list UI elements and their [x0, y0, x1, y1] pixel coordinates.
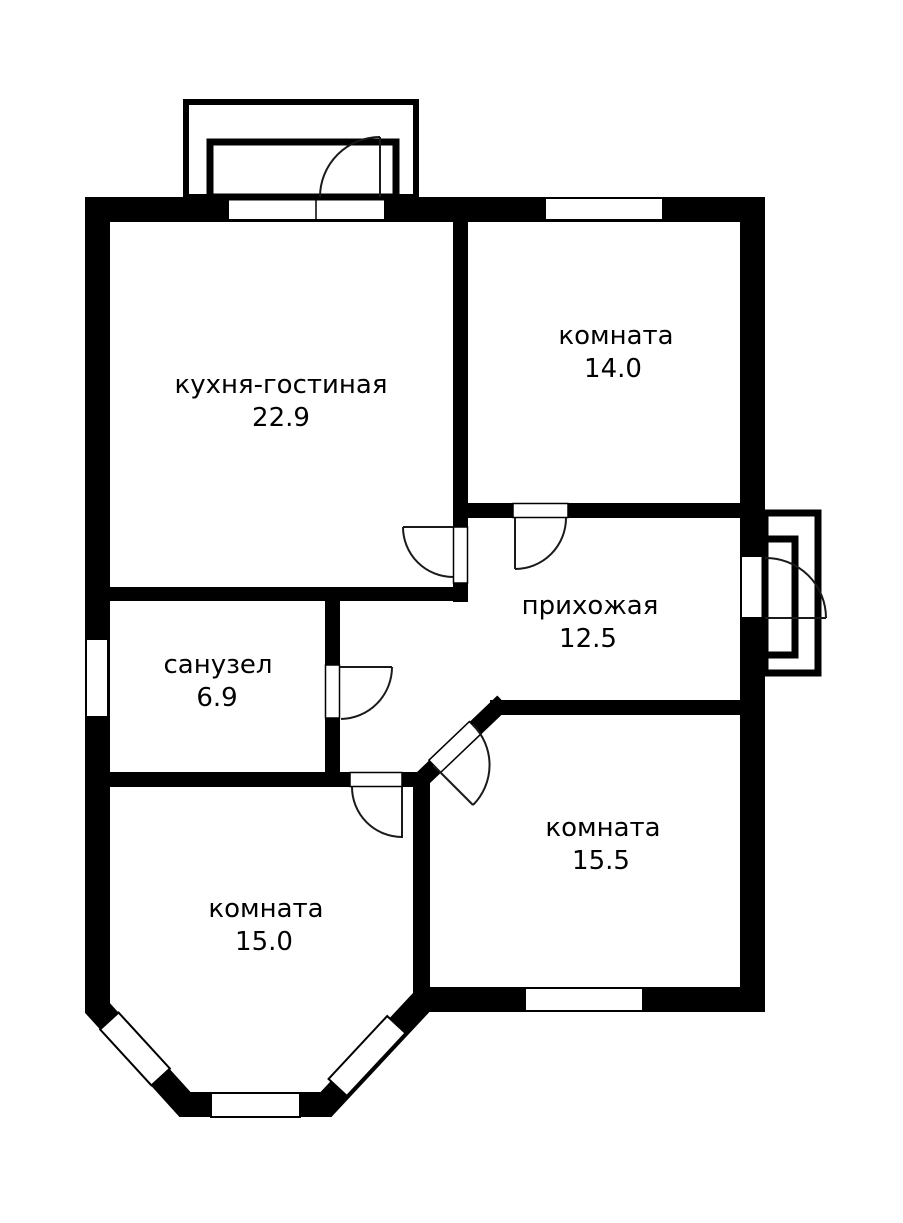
- door-opening-kitchen: [454, 527, 468, 583]
- wall-kitchen-room14: [453, 222, 468, 527]
- wall-hall-room155: [490, 700, 753, 715]
- label-room155-name: комната: [545, 813, 660, 843]
- door-opening-diagonal: [429, 722, 481, 773]
- porch-top-outer: [186, 102, 416, 197]
- wall-room150-room155: [413, 772, 430, 1012]
- door-arc-entry-top: [320, 137, 380, 197]
- wall-room14-bottom-left: [468, 503, 513, 518]
- door-arc-kitchen: [403, 527, 453, 577]
- window-bay-left: [100, 1013, 170, 1086]
- label-room14-area: 14.0: [584, 354, 642, 384]
- entry-porch-top: [186, 102, 416, 197]
- window-bath-left: [86, 639, 108, 717]
- window-bay-bottom: [211, 1093, 300, 1117]
- entry-porch-right: [765, 513, 818, 673]
- wall-kitchen-bath: [97, 587, 453, 601]
- door-opening-room150: [350, 773, 402, 787]
- wall-bath-east-lower: [325, 718, 340, 774]
- label-room150-name: комната: [208, 894, 323, 924]
- door-leaf-room155: [433, 765, 473, 805]
- label-kitchen-living-area: 22.9: [252, 403, 310, 433]
- door-opening-bath: [326, 665, 340, 718]
- wall-bath-bottom: [97, 772, 350, 787]
- door-arc-bath: [341, 667, 392, 719]
- window-room155-bottom: [525, 988, 643, 1011]
- label-hallway-name: прихожая: [522, 591, 659, 621]
- window-bay-right: [329, 1016, 406, 1096]
- floor-plan: кухня-гостиная 22.9 комната 14.0 прихожа…: [0, 0, 903, 1223]
- door-arc-room14: [515, 518, 566, 569]
- label-room150-area: 15.0: [235, 927, 293, 957]
- label-room155-area: 15.5: [572, 846, 630, 876]
- label-kitchen-living-name: кухня-гостиная: [175, 370, 388, 400]
- window-side-door: [741, 556, 763, 618]
- label-bathroom-name: санузел: [163, 650, 272, 680]
- window-entry-top: [228, 198, 385, 220]
- wall-room14-bottom-right: [568, 503, 753, 518]
- window-room14-top: [545, 198, 663, 220]
- wall-kitchen-hall-lower: [453, 583, 468, 602]
- label-hallway-area: 12.5: [559, 624, 617, 654]
- porch-right-inner: [765, 539, 795, 655]
- porch-top-inner: [210, 142, 396, 197]
- label-bathroom-area: 6.9: [196, 683, 237, 713]
- wall-bath-east-upper: [325, 598, 340, 665]
- door-opening-room14: [513, 504, 568, 518]
- door-arc-room150: [352, 787, 402, 837]
- label-room14-name: комната: [558, 321, 673, 351]
